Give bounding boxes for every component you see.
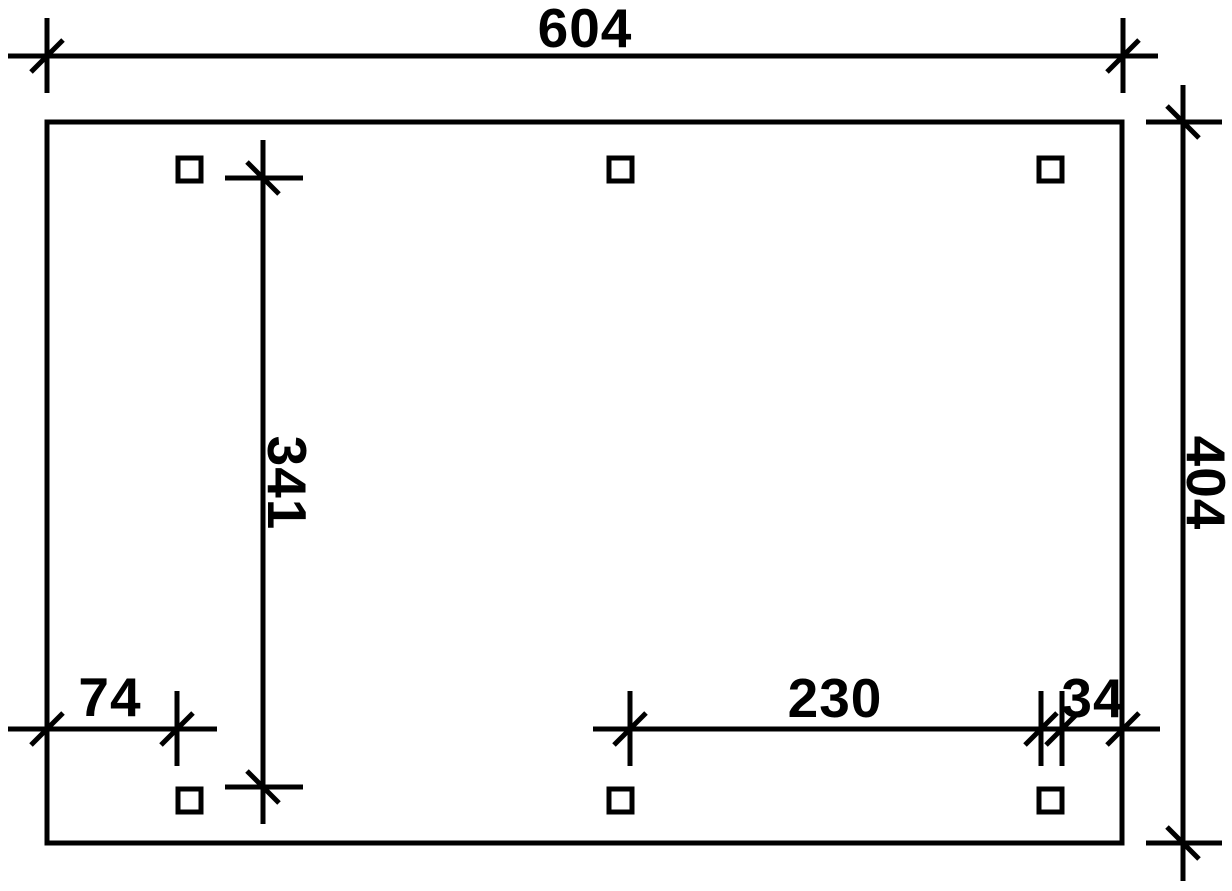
dim-label-right-height: 404	[1175, 436, 1232, 531]
dim-label-inner-height: 341	[256, 436, 318, 531]
dim-label-bottom-right: 34	[1061, 667, 1124, 729]
dim-label-top-width: 604	[538, 0, 633, 59]
floor-plan-drawing: 604 404 341 74 230 34	[0, 0, 1232, 891]
paper-background	[0, 0, 1232, 891]
dim-label-bottom-left: 74	[78, 666, 141, 728]
dim-label-bottom-post-spacing: 230	[788, 667, 883, 729]
technical-drawing-canvas: 604 404 341 74 230 34	[0, 0, 1232, 891]
